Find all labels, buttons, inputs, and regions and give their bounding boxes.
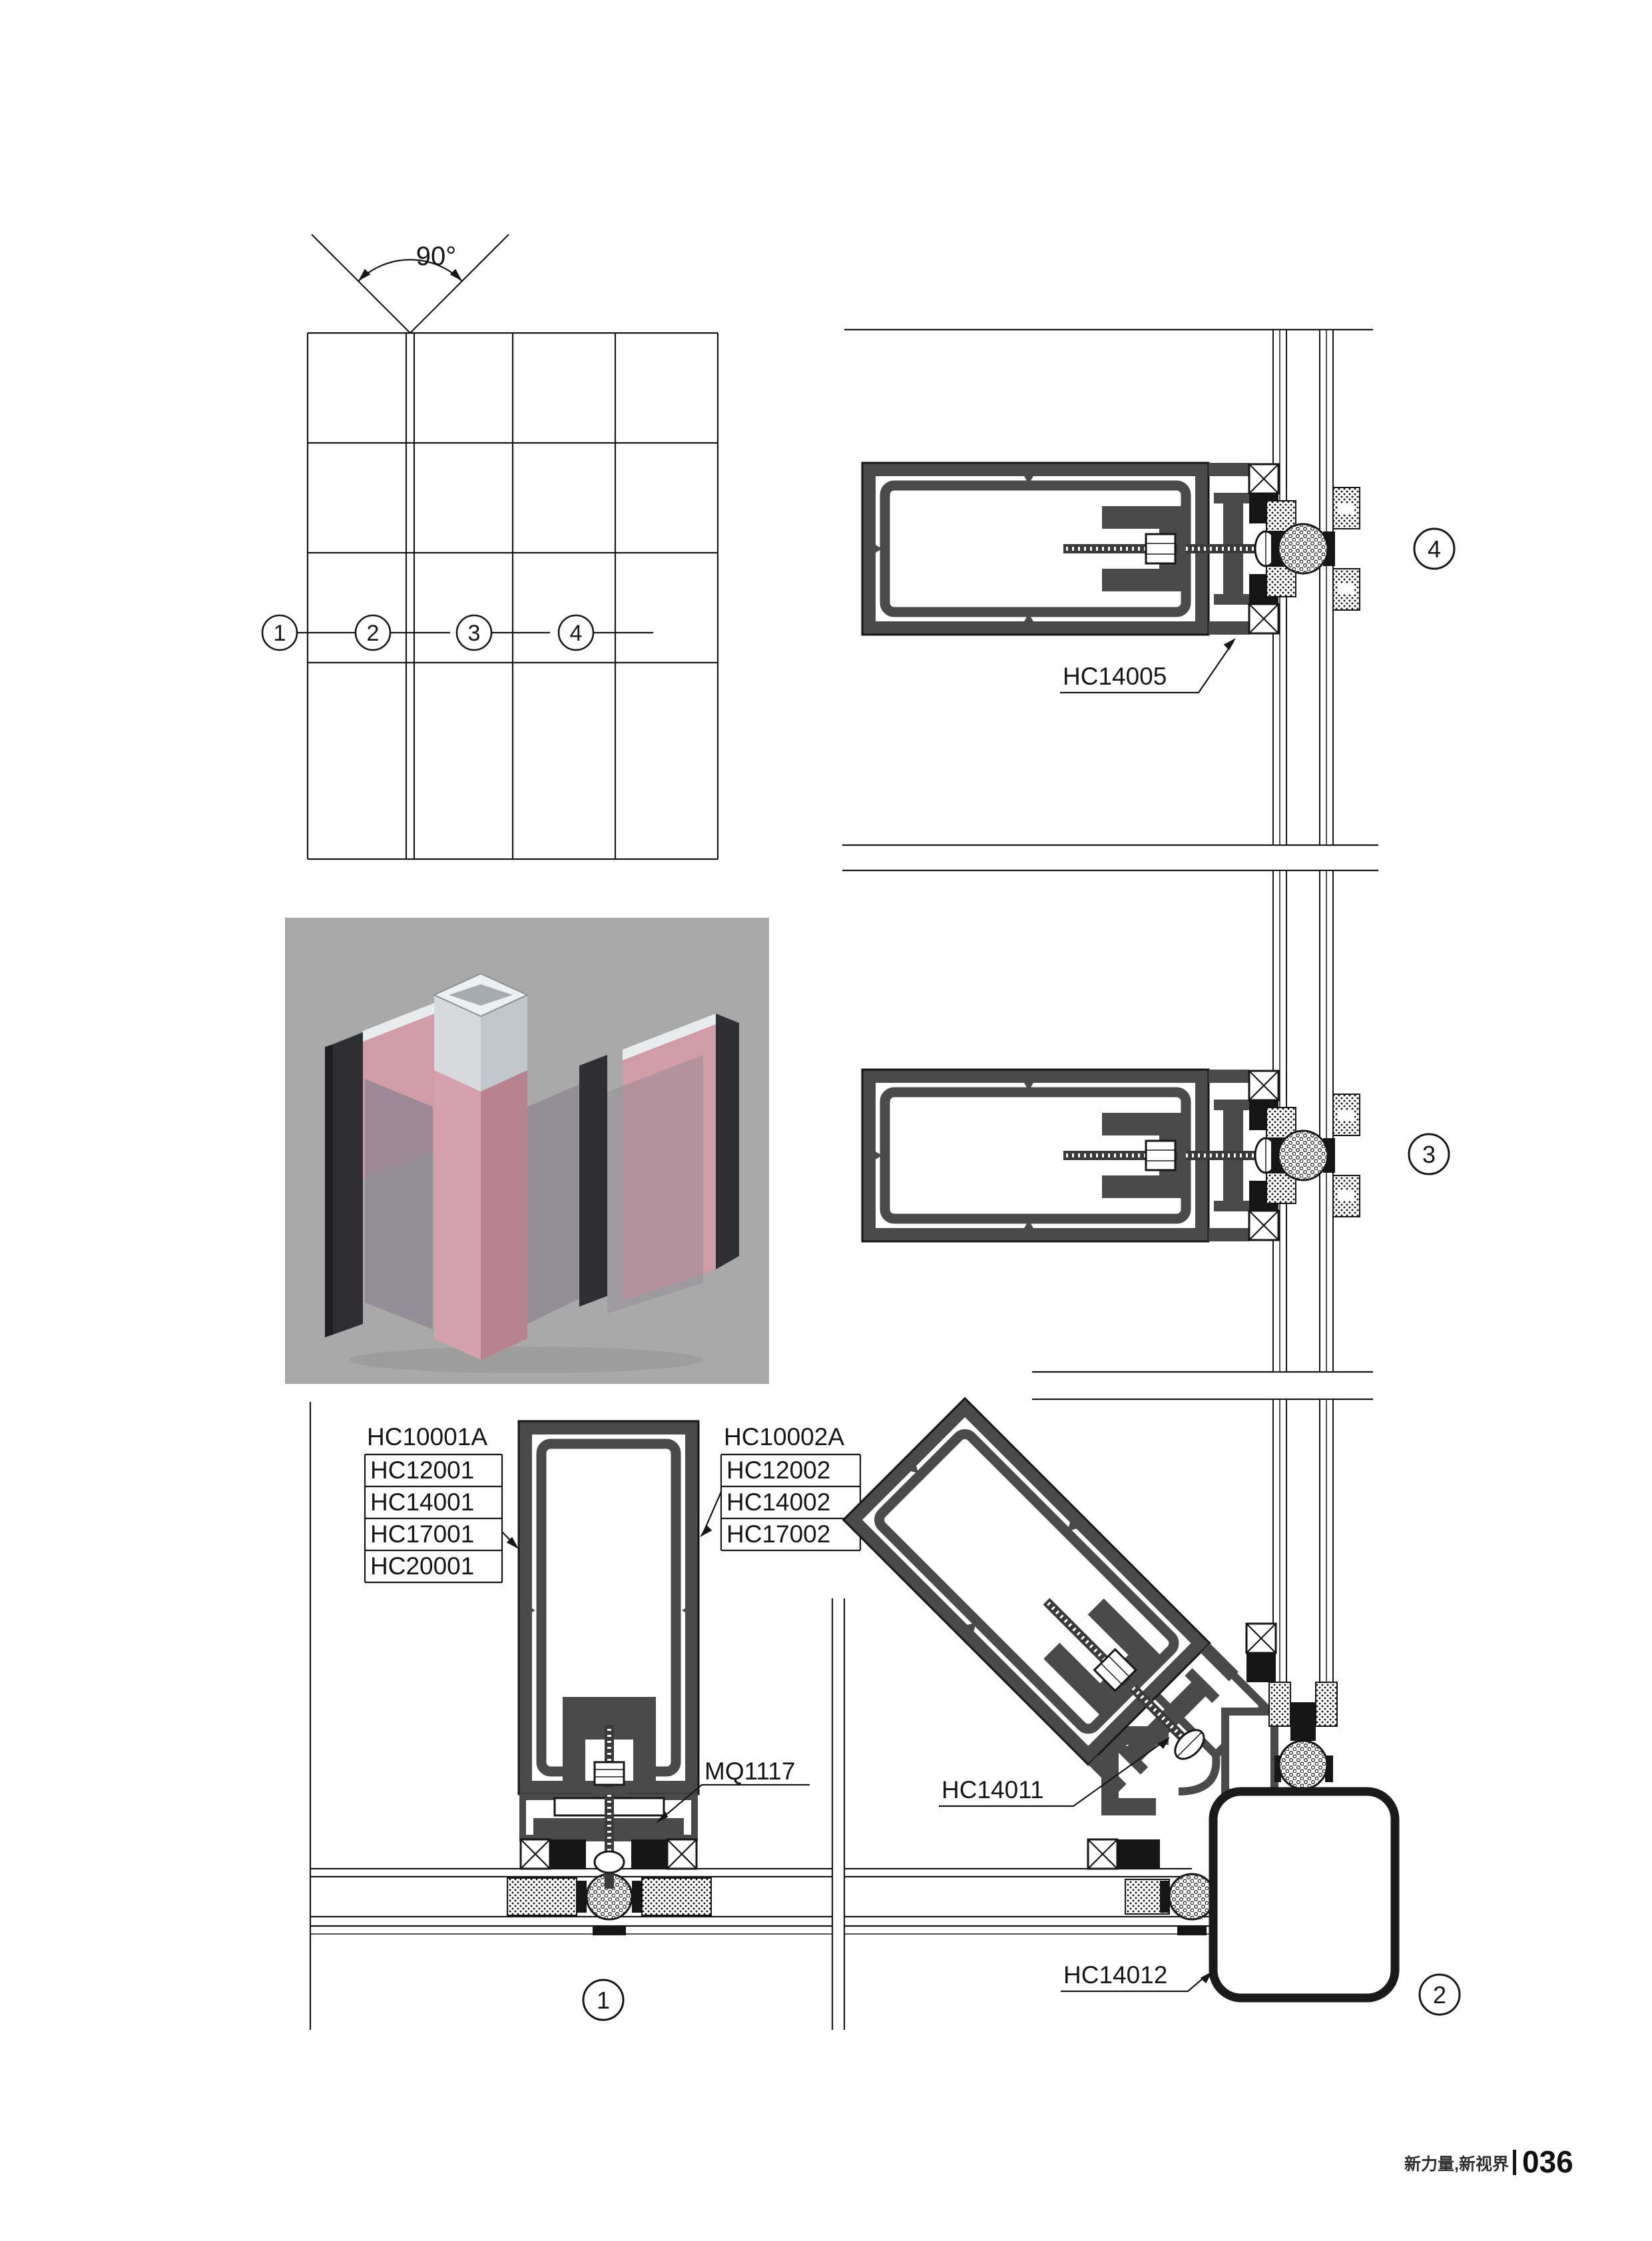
part-label-text: HC14005 xyxy=(1063,663,1167,690)
callout-1-number: 1 xyxy=(274,621,286,646)
part-label-text: HC14012 xyxy=(1063,1961,1167,1989)
label-hc12002: HC12002 xyxy=(726,1456,830,1484)
mullion-left xyxy=(333,1032,363,1335)
corner-block xyxy=(1213,1791,1395,1998)
detail-2: HC14011 HC14012 2 xyxy=(844,1399,1460,2015)
section-callout-1: 1 xyxy=(583,1980,623,2020)
grid-callout-2: 2 xyxy=(356,615,450,650)
label-stack-left: HC10001A HC12001 HC14001 HC17001 HC20001 xyxy=(365,1423,519,1582)
mullion-left-edge xyxy=(325,1044,333,1337)
footer-brand: 新力量,新视界 xyxy=(1404,2154,1509,2174)
callout-1-number: 1 xyxy=(597,1987,610,2014)
gasket-left xyxy=(507,1878,577,1915)
label-stack-right: HC10002A HC12002 HC14002 HC17002 xyxy=(700,1423,860,1550)
label-hc17002: HC17002 xyxy=(726,1520,830,1548)
elevation-schematic: 90° 1 2 3 4 xyxy=(262,234,718,859)
callout-4-number: 4 xyxy=(570,621,583,646)
footer-divider xyxy=(1513,2150,1516,2175)
gasket-right xyxy=(642,1878,711,1915)
detail-1: HC10001A HC12001 HC14001 HC17001 HC20001… xyxy=(310,1402,860,2030)
section-callout-3: 3 xyxy=(1409,1134,1449,1174)
label-hc12001: HC12001 xyxy=(370,1456,474,1484)
part-label-text: MQ1117 xyxy=(704,1758,795,1785)
page-footer: 新力量,新视界 036 xyxy=(1404,2144,1573,2179)
page-canvas: 90° 1 2 3 4 xyxy=(0,0,1652,2241)
angle-label: 90° xyxy=(416,242,457,271)
leader-arrow-right-stack xyxy=(700,1525,712,1537)
mullion-middle xyxy=(579,1055,607,1307)
mullion-right-edge xyxy=(716,1014,739,1269)
footer-page-number: 036 xyxy=(1522,2144,1573,2179)
glass-right-2 xyxy=(607,1055,703,1313)
callout-3-number: 3 xyxy=(468,621,481,646)
glass-transom-line-2 xyxy=(844,1839,1215,1935)
part-label-text: HC14011 xyxy=(942,1776,1044,1803)
callout-4-number: 4 xyxy=(1428,535,1441,563)
detail-3: 3 xyxy=(862,1070,1449,1241)
detail-4: HC14005 4 xyxy=(862,463,1454,693)
render-shadow xyxy=(350,1347,702,1373)
part-label-hc14005: HC14005 xyxy=(1060,638,1236,693)
label-hc17001: HC17001 xyxy=(370,1520,474,1548)
label-hc10001a: HC10001A xyxy=(367,1423,487,1450)
grid-callout-3: 3 xyxy=(457,615,550,650)
glass-right-1 xyxy=(527,1084,579,1324)
angle-annotation: 90° xyxy=(312,234,509,333)
glass-transom-line xyxy=(310,1869,832,1935)
arc-arrow-left xyxy=(358,269,370,281)
callout-3-number: 3 xyxy=(1422,1141,1436,1168)
section-callout-4: 4 xyxy=(1414,529,1454,569)
glass-left xyxy=(365,1079,433,1329)
break-lines-middle xyxy=(832,1598,844,2030)
corner-mullion-lines xyxy=(406,333,414,859)
part-label-hc14012: HC14012 xyxy=(1061,1961,1213,1991)
label-hc14002: HC14002 xyxy=(726,1488,830,1516)
render-3d xyxy=(285,918,769,1384)
column-pink-right-face xyxy=(481,1070,527,1360)
callout-2-number: 2 xyxy=(1433,1981,1446,2009)
label-hc10002a: HC10002A xyxy=(724,1423,844,1450)
leader-arrow xyxy=(1224,638,1236,650)
grid-callout-1: 1 xyxy=(262,615,357,650)
column-pink-left-face xyxy=(434,1070,481,1360)
label-hc20001: HC20001 xyxy=(370,1552,474,1580)
label-hc14001: HC14001 xyxy=(370,1488,474,1516)
section-callout-2: 2 xyxy=(1420,1975,1460,2015)
grid-callout-4: 4 xyxy=(559,615,653,650)
grid-lines xyxy=(308,333,718,859)
callout-2-number: 2 xyxy=(367,621,380,646)
mullion-section-1 xyxy=(519,1421,698,1889)
setting-block xyxy=(1279,1741,1327,1789)
